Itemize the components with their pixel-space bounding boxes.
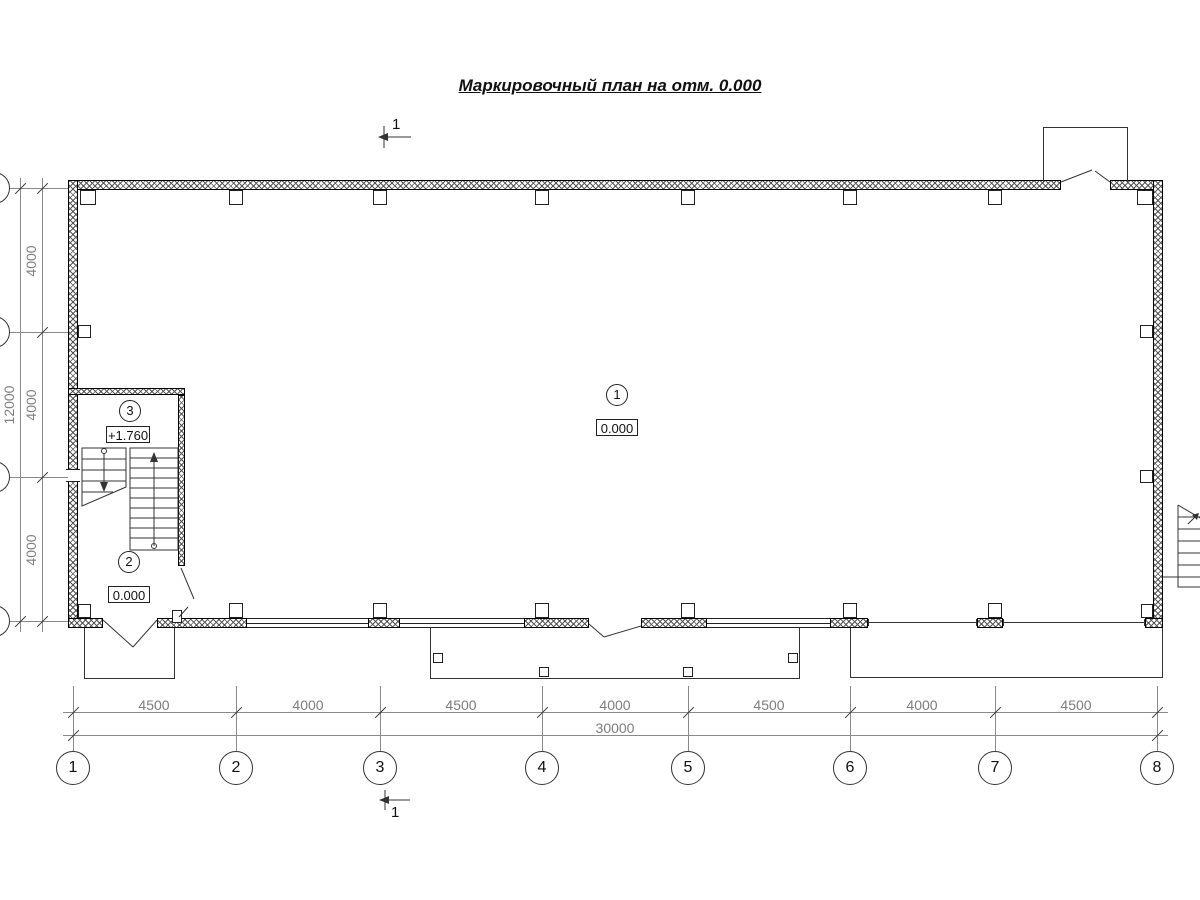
left-wall	[68, 180, 78, 628]
pilaster	[535, 190, 549, 205]
corner-pilaster	[1141, 604, 1153, 618]
pilaster	[681, 603, 695, 618]
exterior-stair	[1163, 505, 1200, 587]
grid-column-extension	[73, 686, 74, 751]
grid-column-bubble: 7	[978, 751, 1012, 785]
corner-pilaster	[1137, 190, 1153, 205]
dock-edge-tick	[868, 619, 869, 626]
elevation-mark: 0.000	[596, 419, 638, 436]
section-mark-label-top: 1	[392, 116, 400, 133]
grid-column-bubble: 3	[363, 751, 397, 785]
bottom-wall-pier	[368, 618, 400, 628]
stair-room-wall-horizontal	[68, 388, 185, 395]
dimension-chain-line-left	[42, 178, 43, 632]
dimension-label: 4000	[585, 697, 645, 713]
section-arrowhead-bottom	[379, 796, 389, 804]
pilaster	[373, 190, 387, 205]
grid-column-extension	[380, 686, 381, 751]
pilaster	[1140, 470, 1153, 483]
grid-column-extension	[995, 686, 996, 751]
dock-edge-tick	[1003, 619, 1004, 626]
dimension-label: 4000	[892, 697, 952, 713]
bottom-wall-pier	[977, 618, 1003, 628]
bottom-wall-pier	[68, 618, 103, 628]
section-mark-label-bottom: 1	[391, 804, 399, 821]
corner-pilaster	[78, 604, 91, 618]
bottom-left-porch	[84, 628, 175, 679]
pilaster	[78, 325, 91, 338]
grid-column-extension	[688, 686, 689, 751]
pilaster	[229, 190, 243, 205]
dimension-label: 4500	[124, 697, 184, 713]
dimension-label-left: 4000	[23, 525, 39, 575]
grid-row-bubble	[0, 172, 10, 204]
dock-edge-tick	[1144, 619, 1145, 626]
top-wall-left-segment	[68, 180, 1061, 190]
right-wall	[1153, 180, 1163, 628]
grid-column-extension	[236, 686, 237, 751]
pilaster	[843, 603, 857, 618]
grid-row-line	[0, 621, 68, 622]
exterior-stair-arrow	[1192, 513, 1199, 520]
door-jamb	[172, 610, 182, 623]
grid-column-bubble: 5	[671, 751, 705, 785]
elevation-mark: +1.760	[106, 426, 150, 443]
grid-column-bubble: 4	[525, 751, 559, 785]
dimension-label: 4500	[431, 697, 491, 713]
loading-platform-center	[430, 628, 800, 679]
grid-row-bubble	[0, 316, 10, 348]
dock-edge-tick	[976, 619, 977, 626]
grid-column-bubble: 6	[833, 751, 867, 785]
dimension-label-left: 4000	[23, 380, 39, 430]
canopy-post	[433, 653, 443, 663]
bottom-wall-pier	[1145, 618, 1163, 628]
corner-pilaster	[80, 190, 96, 205]
dimension-label-left-total: 12000	[1, 375, 17, 435]
bottom-wall-pier	[641, 618, 707, 628]
dimension-label-left: 4000	[23, 236, 39, 286]
window-band	[707, 618, 830, 628]
grid-row-line	[0, 477, 68, 478]
dock-edge-line	[1003, 622, 1145, 623]
window-band	[400, 618, 524, 628]
stair-landing-window	[66, 469, 80, 482]
bottom-wall-pier	[524, 618, 589, 628]
room-number-badge: 1	[606, 384, 628, 406]
grid-row-line	[0, 188, 68, 189]
section-arrowhead-top	[378, 133, 388, 141]
dimension-label: 4500	[1046, 697, 1106, 713]
dimension-chain-line-left-total	[20, 178, 21, 632]
pilaster	[988, 603, 1002, 618]
canopy-post	[683, 667, 693, 677]
canopy-post	[788, 653, 798, 663]
drawing-title: Маркировочный план на отм. 0.000	[420, 76, 800, 96]
loading-platform-right	[850, 628, 1163, 678]
grid-column-bubble: 2	[219, 751, 253, 785]
grid-column-extension	[850, 686, 851, 751]
stair-flight-down	[82, 448, 126, 506]
grid-column-extension	[542, 686, 543, 751]
grid-column-extension	[1157, 686, 1158, 751]
grid-row-bubble	[0, 461, 10, 493]
grid-row-line	[0, 332, 68, 333]
dimension-label-total: 30000	[585, 720, 645, 736]
stair-arrow-down	[100, 482, 108, 492]
bottom-wall-pier	[830, 618, 868, 628]
canopy-post	[539, 667, 549, 677]
bottom-wall-pier	[157, 618, 247, 628]
pilaster	[373, 603, 387, 618]
elevation-mark: 0.000	[108, 586, 150, 603]
stair-room-wall-vertical	[178, 395, 185, 566]
dimension-label: 4500	[739, 697, 799, 713]
pilaster	[988, 190, 1002, 205]
pilaster	[681, 190, 695, 205]
pilaster	[1140, 325, 1153, 338]
grid-column-bubble: 1	[56, 751, 90, 785]
stair-arrow-up	[150, 452, 158, 462]
room-number-badge: 3	[119, 400, 141, 422]
room-number-badge: 2	[118, 551, 140, 573]
grid-column-bubble: 8	[1140, 751, 1174, 785]
top-entrance-porch	[1043, 127, 1128, 182]
grid-row-bubble	[0, 605, 10, 637]
stair-flight-up	[130, 448, 178, 550]
floor-plan-canvas: Маркировочный план на отм. 0.000	[0, 0, 1200, 900]
pilaster	[229, 603, 243, 618]
dock-edge-line	[868, 622, 977, 623]
pilaster	[843, 190, 857, 205]
window-band	[247, 618, 368, 628]
pilaster	[535, 603, 549, 618]
dimension-label: 4000	[278, 697, 338, 713]
